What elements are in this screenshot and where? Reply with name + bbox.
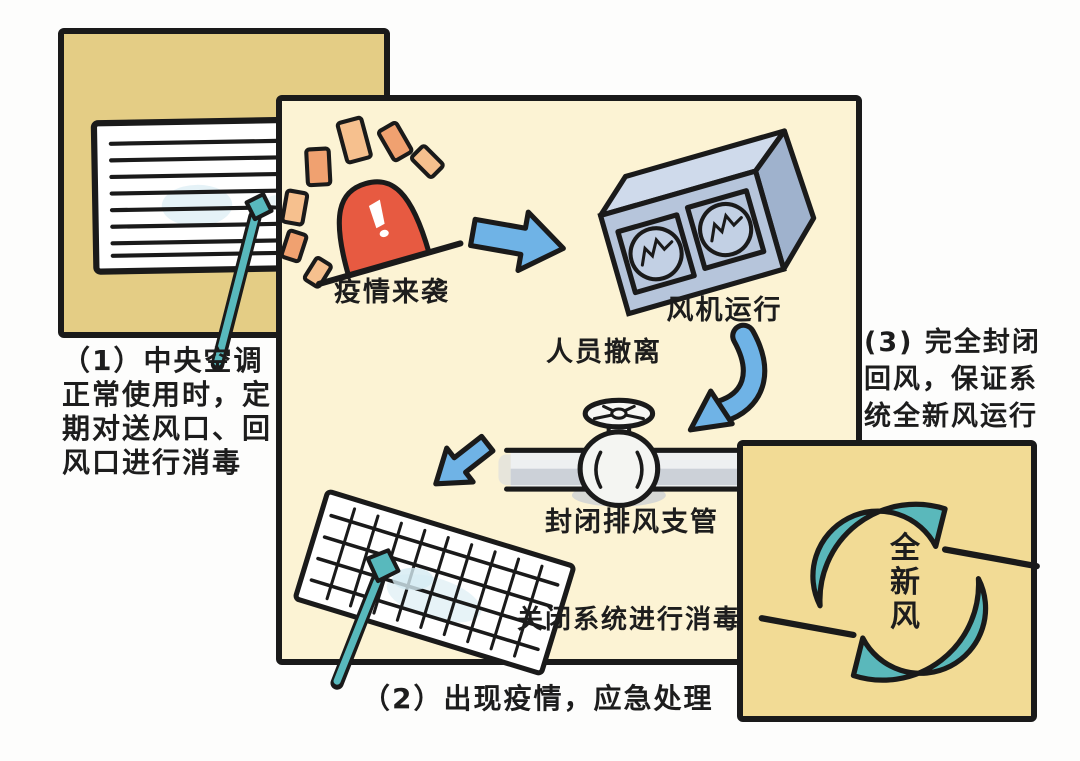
- curved-arrow-down-icon: [690, 336, 754, 430]
- label-disinfect: 关闭系统进行消毒: [504, 606, 754, 636]
- caption-step-2: （2）出现疫情，应急处理: [362, 677, 713, 717]
- arrow-right-icon: [468, 203, 569, 277]
- label-evacuate: 人员撤离: [534, 337, 674, 368]
- panel-fresh-air: 全 新 风: [737, 440, 1037, 722]
- caption-step-3: (3) 完全封闭 回风，保证系 统全新风运行: [864, 324, 1041, 435]
- label-fan: 风机运行: [632, 295, 817, 326]
- infographic-canvas: （1）中央空调 正常使用时，定 期对送风口、回 风口进行消毒: [0, 0, 1080, 761]
- small-arrow-down-left-icon: [423, 427, 501, 501]
- caption-step-1: （1）中央空调 正常使用时，定 期对送风口、回 风口进行消毒: [62, 344, 272, 480]
- alarm-siren-icon: [250, 98, 467, 295]
- fan-unit-icon: [592, 130, 825, 314]
- label-valve: 封闭排风支管: [532, 507, 732, 538]
- label-fresh-air: 全 新 风: [883, 532, 927, 634]
- label-alarm: 疫情来袭: [312, 277, 472, 308]
